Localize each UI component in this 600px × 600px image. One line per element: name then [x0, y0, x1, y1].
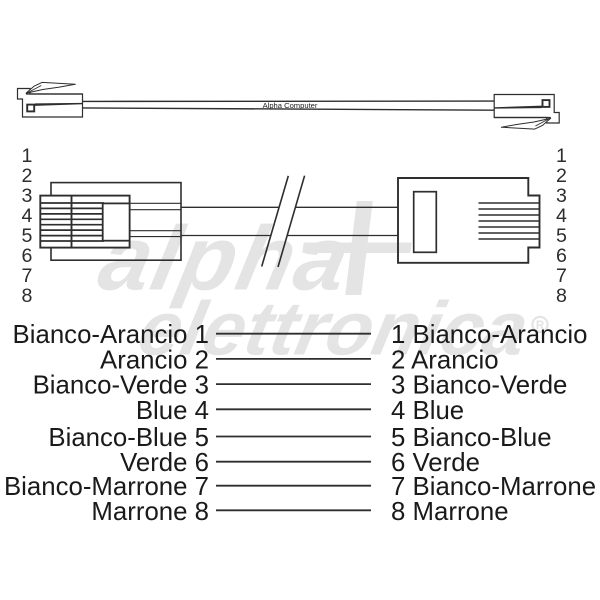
svg-text:1: 1	[556, 145, 567, 167]
svg-text:7: 7	[556, 265, 567, 287]
svg-text:Bianco-Arancio 1: Bianco-Arancio 1	[13, 321, 209, 349]
svg-text:5 Bianco-Blue: 5 Bianco-Blue	[391, 424, 552, 452]
svg-text:4: 4	[556, 205, 567, 227]
svg-text:Arancio 2: Arancio 2	[100, 346, 209, 374]
svg-text:1 Bianco-Arancio: 1 Bianco-Arancio	[391, 321, 587, 349]
svg-text:3 Bianco-Verde: 3 Bianco-Verde	[391, 372, 567, 400]
svg-text:6: 6	[22, 245, 33, 267]
svg-text:2: 2	[22, 165, 33, 187]
svg-text:4 Blue: 4 Blue	[391, 397, 464, 425]
svg-text:7: 7	[22, 265, 33, 287]
svg-text:5: 5	[556, 225, 567, 247]
svg-text:8 Marrone: 8 Marrone	[391, 498, 509, 526]
svg-text:Marrone 8: Marrone 8	[91, 498, 209, 526]
svg-text:Blue 4: Blue 4	[136, 397, 209, 425]
svg-text:2 Arancio: 2 Arancio	[391, 346, 499, 374]
svg-text:2: 2	[556, 165, 567, 187]
svg-text:Alpha Computer: Alpha Computer	[263, 101, 318, 110]
svg-text:8: 8	[22, 285, 33, 307]
svg-text:4: 4	[22, 205, 33, 227]
svg-text:1: 1	[22, 145, 33, 167]
svg-text:5: 5	[22, 225, 33, 247]
svg-text:3: 3	[556, 185, 567, 207]
svg-text:Bianco-Verde 3: Bianco-Verde 3	[33, 372, 209, 400]
svg-text:6: 6	[556, 245, 567, 267]
svg-text:Bianco-Blue 5: Bianco-Blue 5	[48, 424, 209, 452]
svg-text:8: 8	[556, 285, 567, 307]
svg-text:3: 3	[22, 185, 33, 207]
